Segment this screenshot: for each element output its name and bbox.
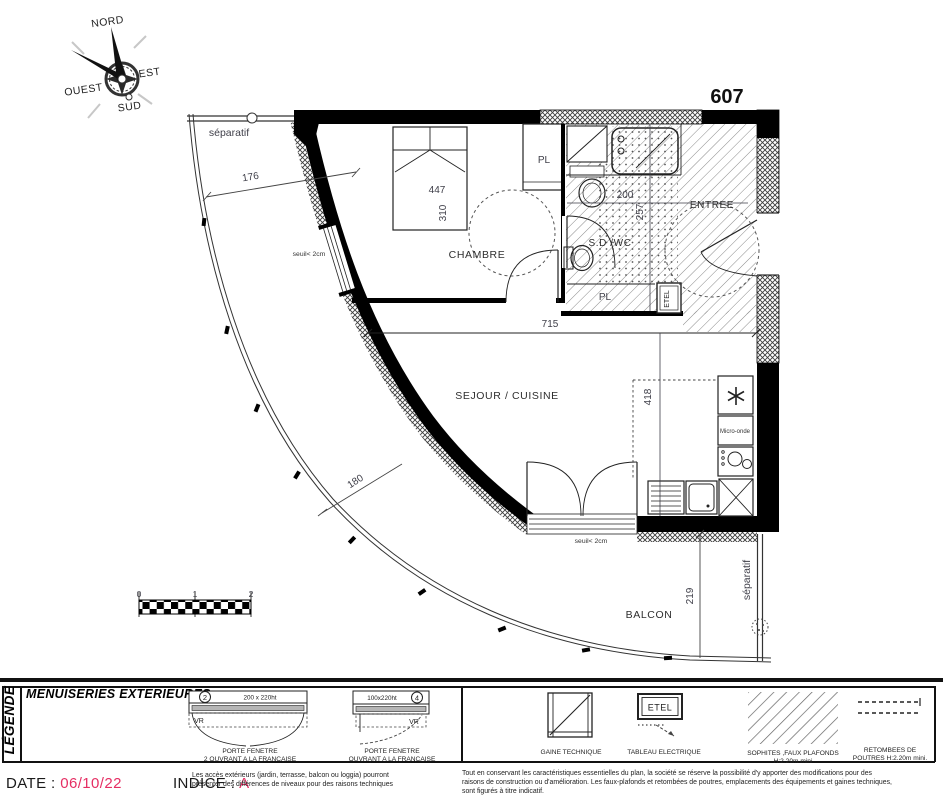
window-2-label-2: 2 OUVRANT A LA FRANCAISE bbox=[188, 756, 312, 764]
window-4-label-1: PORTE FENETRE bbox=[332, 748, 452, 756]
dim-219-line bbox=[696, 530, 704, 658]
microwave-label: Micro-onde bbox=[720, 429, 751, 435]
room-label-entree: ENTREE bbox=[690, 200, 734, 211]
footer-note-right-2: raisons de construction ou d'amélioratio… bbox=[462, 778, 940, 787]
chambre-bathroom-wall bbox=[561, 124, 565, 298]
etel-label: ETEL bbox=[664, 290, 671, 308]
footer-note-left-1: Les accès extérieurs (jardin, terrasse, … bbox=[192, 771, 452, 780]
dim-200: 200 bbox=[617, 190, 634, 201]
bottom-wall bbox=[637, 516, 779, 532]
compass-south-label: SUD bbox=[117, 99, 142, 114]
curved-facade-wall bbox=[306, 118, 534, 522]
kitchen-sink-icon bbox=[689, 484, 714, 511]
gaine-technique-plan bbox=[567, 126, 607, 177]
retombees-label-2: POUTRES H:2.20m mini. bbox=[848, 755, 932, 763]
seuil-chambre-label: seuil< 2cm bbox=[293, 251, 326, 258]
apartment-number: 607 bbox=[710, 86, 743, 108]
chambre-door bbox=[506, 250, 558, 302]
etel-tag: ETEL bbox=[648, 703, 673, 713]
floor-plan-drawing: NORD EST SUD OUEST 607 séparatif bbox=[0, 0, 943, 678]
dim-715: 715 bbox=[542, 319, 559, 330]
footer-note-left: Les accès extérieurs (jardin, terrasse, … bbox=[192, 771, 452, 789]
retombees-label: RETOMBEES DE POUTRES H:2.20m mini. bbox=[848, 747, 932, 763]
compass-west-label: OUEST bbox=[64, 81, 104, 98]
legend-title: LÉGENDE bbox=[2, 683, 18, 757]
entry-door-opening bbox=[756, 213, 780, 275]
separatif-right-wall bbox=[758, 534, 763, 661]
fridge-icon bbox=[728, 387, 744, 405]
tableau-electrique-icon: ETEL bbox=[634, 692, 694, 742]
right-wall-top-cap bbox=[757, 110, 779, 138]
window-2-label: PORTE FENETRE 2 OUVRANT A LA FRANCAISE bbox=[188, 748, 312, 764]
floor-plan-page: NORD EST SUD OUEST 607 séparatif bbox=[0, 0, 943, 800]
dish-drainer-icon bbox=[651, 486, 681, 511]
gaine-technique-icon bbox=[546, 691, 596, 741]
pl-sdb-label: PL bbox=[599, 292, 612, 303]
window-2-label-1: PORTE FENETRE bbox=[188, 748, 312, 756]
dim-219: 219 bbox=[685, 587, 696, 604]
dim-447: 447 bbox=[429, 185, 446, 196]
faux-plafond-hatch-passage bbox=[683, 311, 757, 332]
scale-bar: 0 1 2 bbox=[137, 589, 254, 617]
window-type-2-symbol: ​ 2 200 x 220ht VR bbox=[188, 690, 312, 748]
window-2-number: 2 bbox=[203, 693, 207, 702]
right-wall-lower bbox=[757, 363, 779, 532]
cooktop-icon bbox=[722, 451, 752, 469]
sophites-label-1: SOPHITES ,FAUX PLAFONDS bbox=[736, 750, 850, 758]
compass-rose: NORD EST SUD OUEST bbox=[64, 14, 162, 118]
footer-note-right: Tout en conservant les caractéristiques … bbox=[462, 769, 940, 796]
dim-176: 176 bbox=[241, 171, 260, 185]
footer-note-right-3: sont figurés à titre indicatif. bbox=[462, 787, 940, 796]
sophites-label-2: H:2.20m mini bbox=[736, 758, 850, 766]
etel-box: ETEL bbox=[657, 283, 681, 313]
bed-icon bbox=[393, 127, 467, 230]
date-value: 06/10/22 bbox=[60, 775, 122, 792]
window-4-label: PORTE FENETRE OUVRANT A LA FRANCAISE bbox=[332, 748, 452, 764]
pl-chambre-label: PL bbox=[538, 155, 551, 166]
room-label-chambre: CHAMBRE bbox=[449, 249, 506, 261]
sophites-hatch-icon bbox=[748, 692, 838, 744]
room-label-sdwc: S.D /WC bbox=[588, 238, 631, 249]
seuil-sejour-label: seuil< 2cm bbox=[575, 538, 608, 545]
turning-circle-chambre bbox=[469, 190, 555, 276]
footer-note-right-1: Tout en conservant les caractéristiques … bbox=[462, 769, 940, 778]
dim-180-line bbox=[318, 464, 402, 516]
dim-257: 257 bbox=[635, 203, 646, 220]
date-label: DATE : bbox=[6, 775, 56, 792]
top-wall bbox=[296, 110, 779, 124]
sophites-label: SOPHITES ,FAUX PLAFONDS H:2.20m mini bbox=[736, 750, 850, 766]
dim-176-line bbox=[203, 168, 360, 201]
window-4-vr: VR bbox=[409, 719, 419, 726]
gaine-technique-label: GAINE TECHNIQUE bbox=[521, 749, 621, 757]
room-label-sejour: SEJOUR / CUISINE bbox=[455, 390, 559, 402]
retombees-label-1: RETOMBEES DE bbox=[848, 747, 932, 755]
compass-east-label: EST bbox=[138, 66, 161, 81]
tableau-electrique-label: TABLEAU ELECTRIQUE bbox=[614, 749, 714, 757]
balcony-french-doors bbox=[527, 462, 637, 534]
separatif-top-wall bbox=[187, 113, 308, 123]
window-4-number: 4 bbox=[415, 693, 419, 702]
separatif-top-label: séparatif bbox=[209, 127, 249, 139]
legend-section-title: MENUISERIES EXTERIEURES bbox=[26, 687, 211, 701]
curved-wall-outer-band bbox=[295, 122, 529, 531]
dim-310: 310 bbox=[438, 204, 449, 221]
window-4-label-2: OUVRANT A LA FRANCAISE bbox=[332, 756, 452, 764]
window-2-size: 200 x 220ht bbox=[244, 695, 277, 702]
chambre-hall-wall-stub bbox=[556, 298, 565, 303]
dim-418: 418 bbox=[643, 388, 654, 405]
separatif-right-label: séparatif bbox=[741, 560, 753, 600]
top-wall-party-section bbox=[540, 110, 702, 124]
compass-north-label: NORD bbox=[90, 14, 124, 30]
balcony-drain-icon bbox=[752, 619, 768, 635]
room-label-balcon: BALCON bbox=[626, 609, 673, 621]
window-4-size: 100x220ht bbox=[367, 695, 397, 702]
window-type-4-symbol: 100x220ht 4 VR bbox=[352, 690, 432, 748]
closet-pl-chambre: PL bbox=[523, 124, 563, 190]
retombees-icon bbox=[856, 697, 924, 719]
footer-note-left-2: présenter des différences de niveaux pou… bbox=[192, 780, 452, 789]
chambre-hall-wall bbox=[352, 298, 506, 303]
